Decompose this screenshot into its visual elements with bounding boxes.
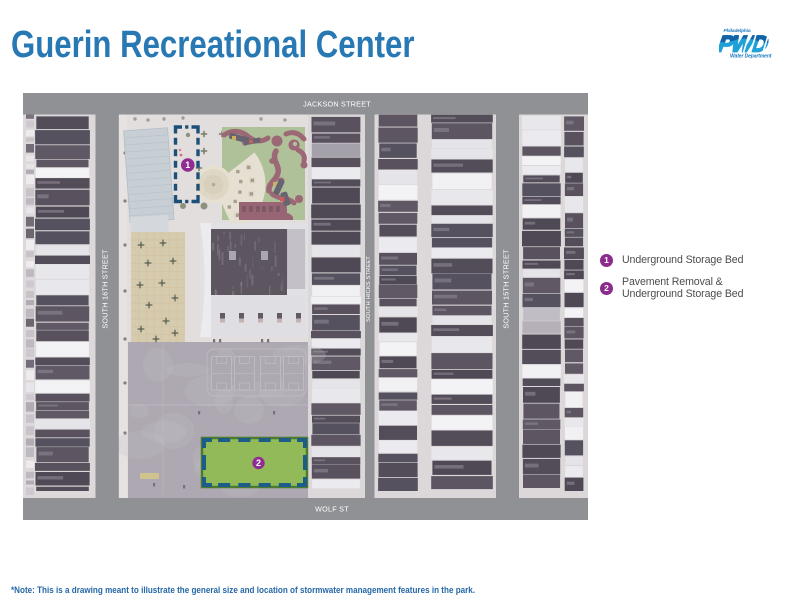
svg-text:SOUTH 15TH STREET: SOUTH 15TH STREET [502,249,511,329]
svg-text:JACKSON STREET: JACKSON STREET [303,100,371,109]
svg-text:1: 1 [185,160,190,170]
svg-text:2: 2 [256,458,261,468]
svg-text:SOUTH HICKS STREET: SOUTH HICKS STREET [366,256,372,322]
svg-text:WOLF ST: WOLF ST [315,505,349,514]
svg-text:SOUTH 16TH STREET: SOUTH 16TH STREET [101,249,110,329]
svg-text:Water Department: Water Department [730,54,772,60]
